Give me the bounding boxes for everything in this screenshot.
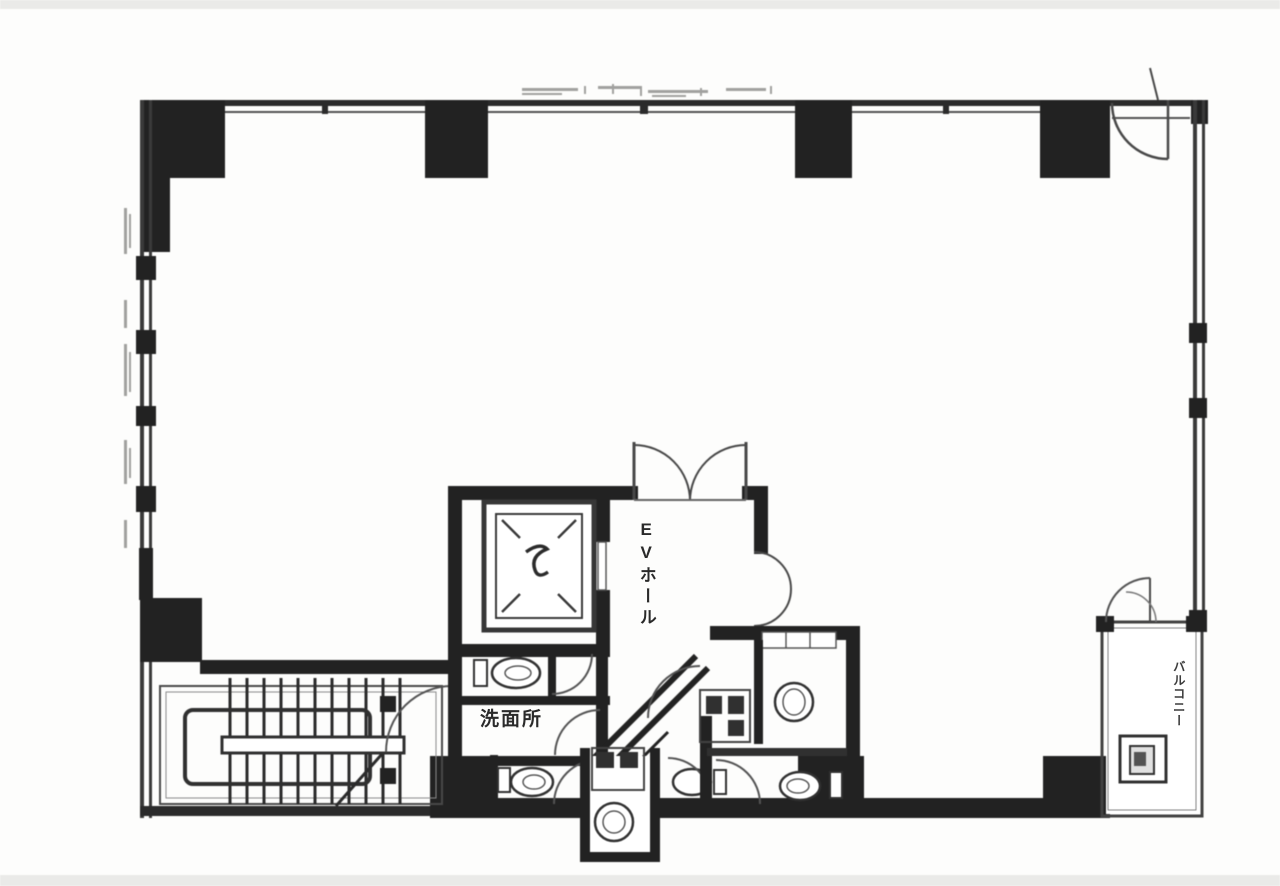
toilet-tank [474, 660, 487, 686]
staircase [160, 660, 460, 808]
washroom-label: 洗面所 [480, 710, 543, 731]
hall-north-double-doors [634, 442, 746, 501]
bottom-center-room [580, 748, 660, 862]
toilet-bowl [511, 768, 553, 796]
ev-hall-label: EVホール [636, 520, 655, 629]
right-window-wall [1189, 100, 1207, 632]
structural-pillars-top [140, 100, 1208, 252]
compartment-door-arc [552, 654, 592, 694]
floor-plan-drawing [0, 0, 1280, 886]
left-mid-pillar [140, 598, 202, 662]
elevator-car [484, 502, 594, 630]
left-dimension-annotations [124, 208, 131, 548]
toilet-bowl [492, 658, 540, 688]
left-wall-mullions [136, 256, 156, 600]
elevator-shaft [448, 486, 610, 658]
floor-plan-page: EVホール 洗面所 バルコニー [0, 0, 1280, 886]
stair-mid-landing-band [222, 737, 404, 753]
balcony [1096, 578, 1204, 816]
hall-east-double-doors [754, 552, 791, 626]
basin [595, 803, 633, 841]
balcony-label: バルコニー [1170, 660, 1184, 728]
balcony-door-arc [1106, 578, 1150, 622]
block-entry-door-arc [648, 666, 700, 718]
top-dimension-annotations [522, 84, 772, 97]
toilet-bowl [780, 772, 820, 800]
top-right-entry-door [1112, 68, 1168, 159]
elevator-hall [604, 442, 791, 642]
high-window [762, 632, 836, 648]
washroom-area [448, 644, 612, 766]
elevator-door-opening [598, 542, 606, 590]
